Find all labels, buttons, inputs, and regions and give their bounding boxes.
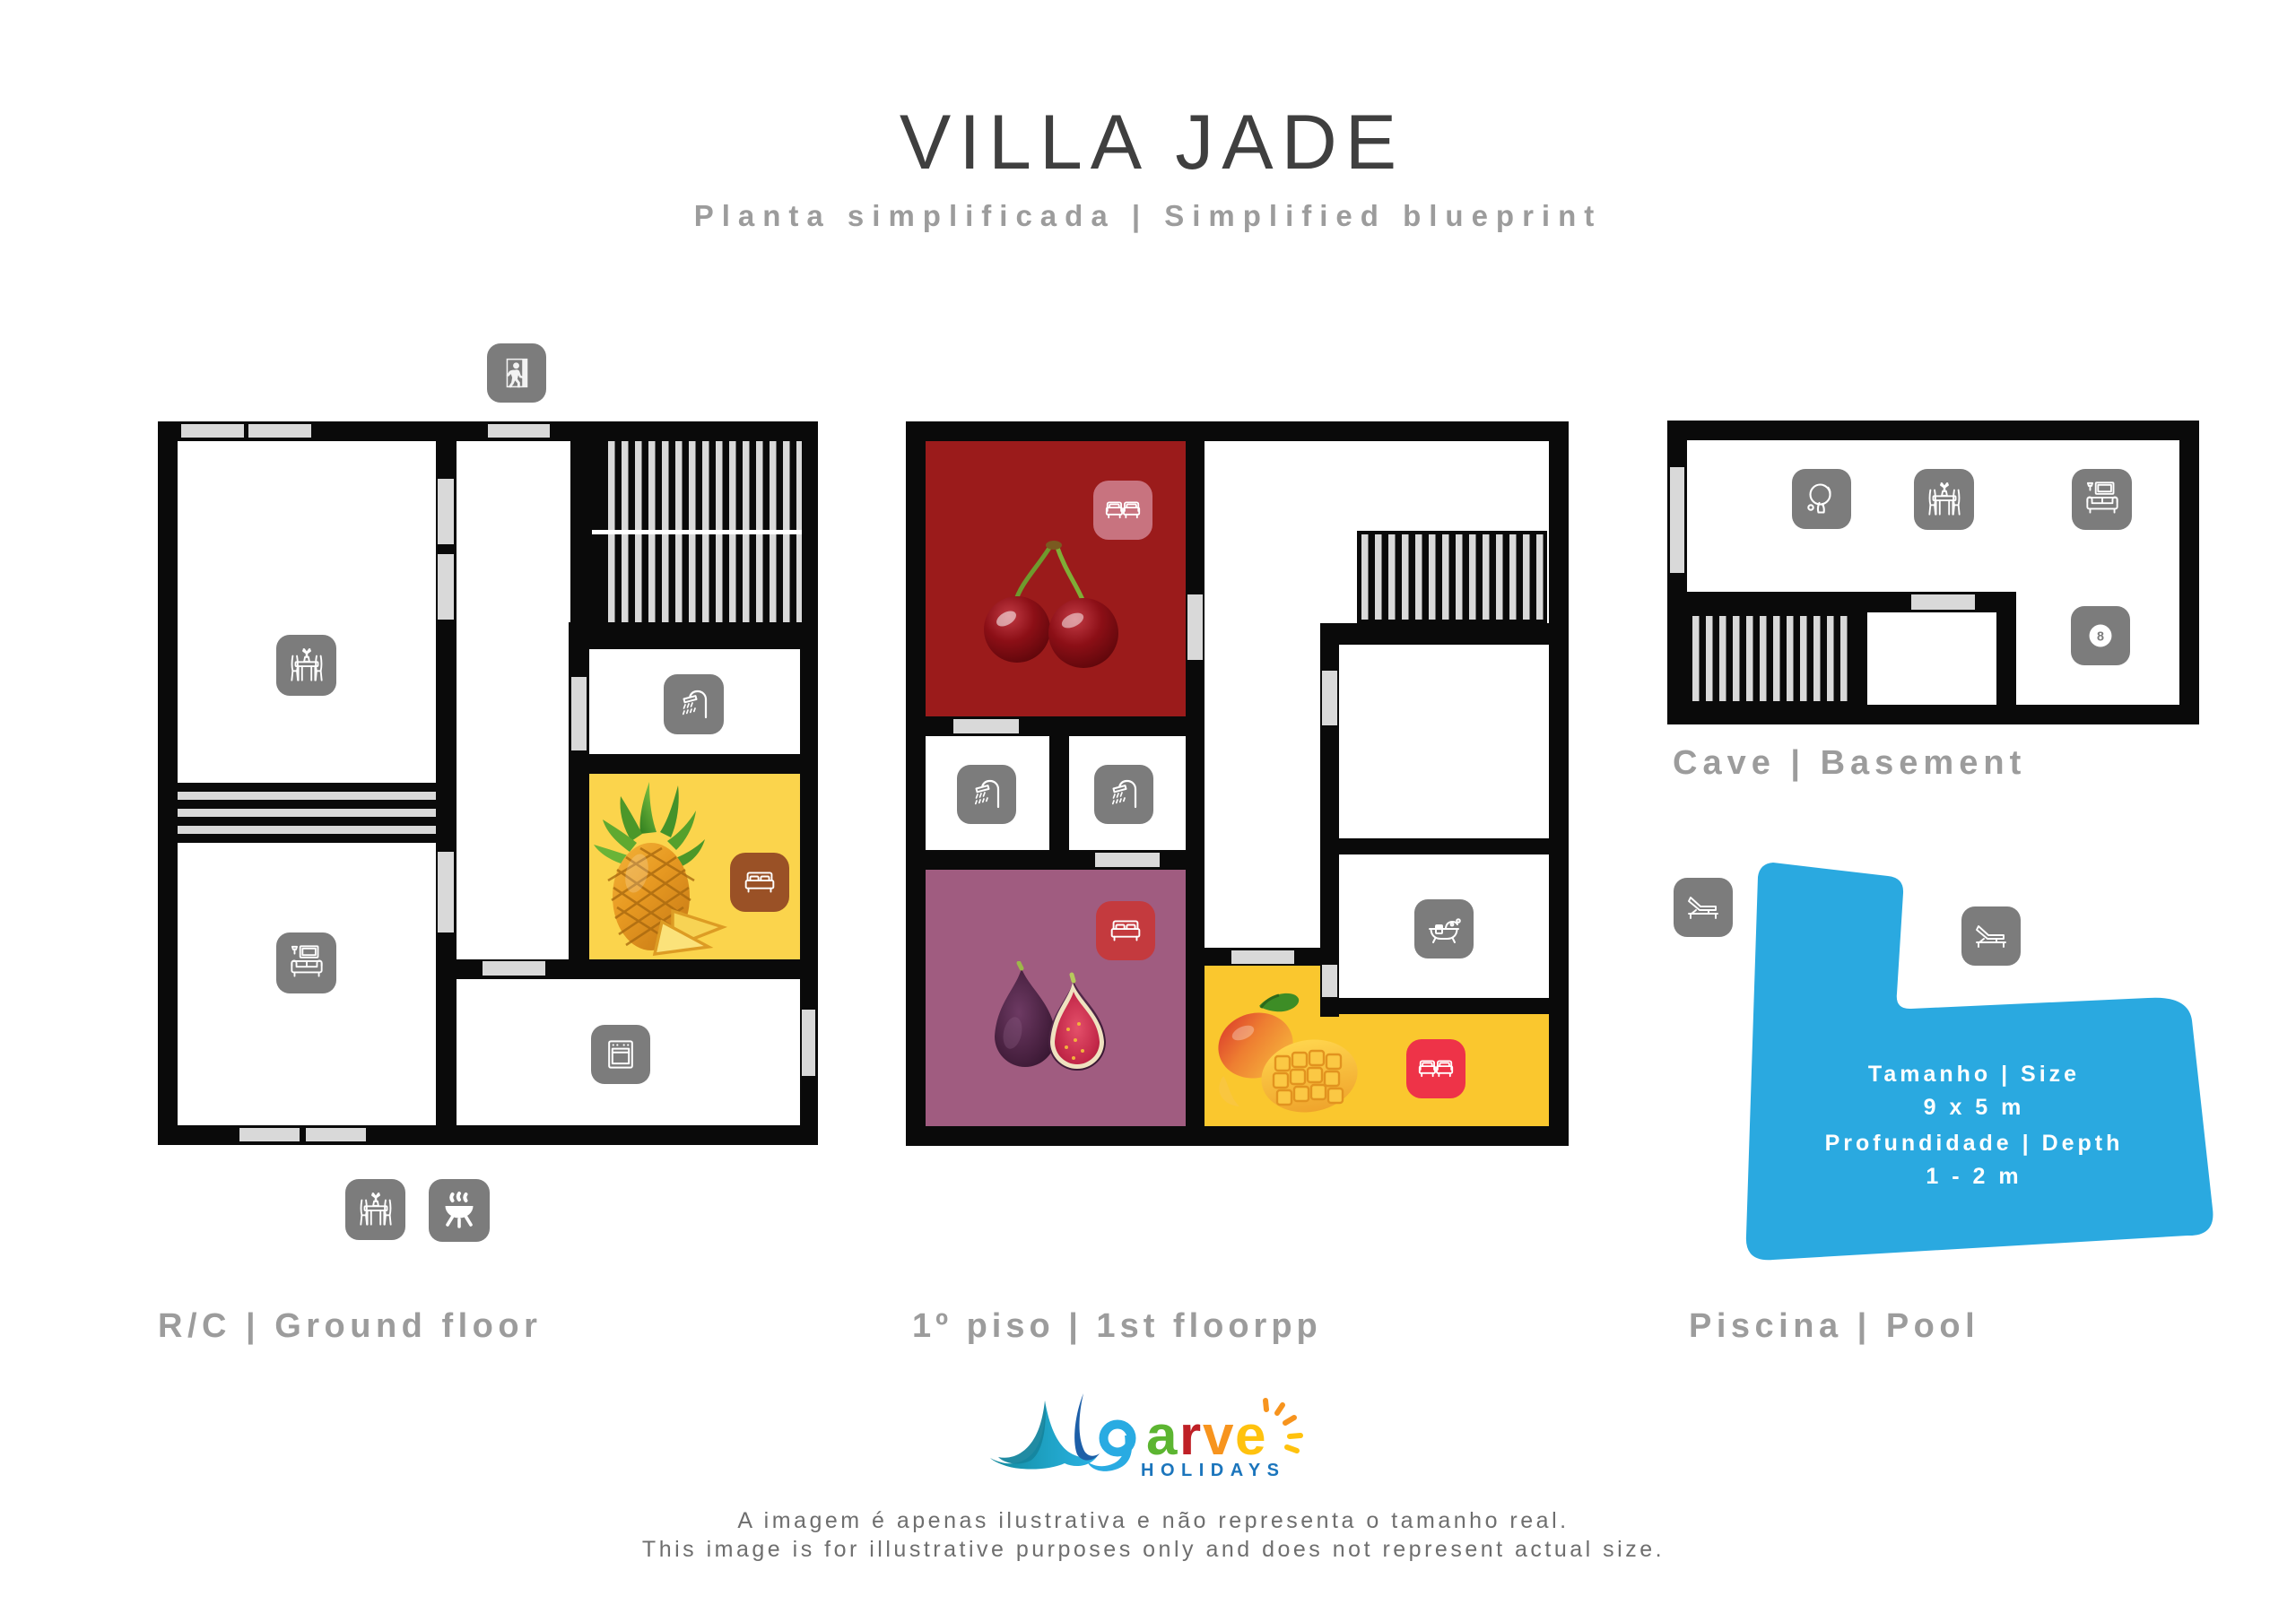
svg-text:a: a	[1146, 1405, 1178, 1467]
svg-text:e: e	[1235, 1405, 1265, 1467]
svg-text:HOLIDAYS: HOLIDAYS	[1141, 1461, 1286, 1480]
svg-text:8: 8	[2097, 629, 2104, 644]
svg-text:v: v	[1203, 1405, 1234, 1467]
svg-text:r: r	[1179, 1405, 1201, 1467]
